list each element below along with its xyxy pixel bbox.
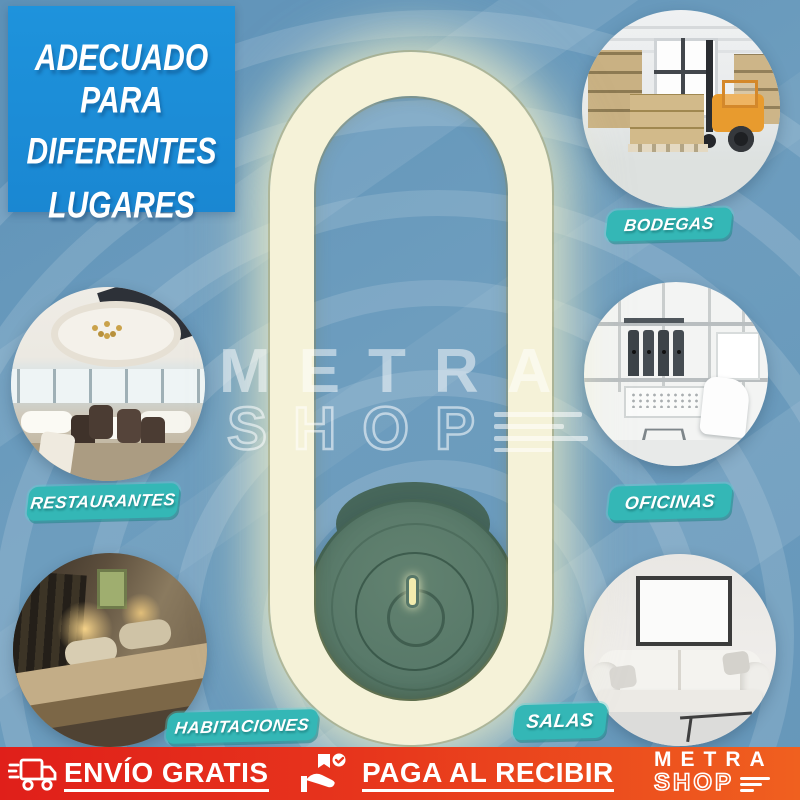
- brand-logo: METRA SHOP: [654, 749, 774, 795]
- chair-cover: [36, 431, 76, 477]
- oficinas-label: OFICINAS: [607, 483, 733, 520]
- brand-logo-metra: METRA: [654, 749, 774, 771]
- headline-line-1: ADECUADO PARA: [8, 38, 235, 123]
- headline-badge: ADECUADO PARA DIFERENTES LUGARES: [8, 6, 235, 212]
- headline-line-3: LUGARES: [8, 185, 235, 228]
- chandelier: [104, 321, 110, 327]
- restaurantes-photo: [11, 287, 205, 481]
- salas-photo: [584, 554, 776, 746]
- dining-chairs: [89, 405, 113, 439]
- restaurantes-label: RESTAURANTES: [26, 483, 180, 521]
- brand-speed-lines: [734, 774, 770, 792]
- office-chair: [699, 376, 751, 438]
- oficinas-photo: [584, 282, 768, 466]
- window-frame: [654, 70, 712, 74]
- device-ring: [270, 52, 552, 745]
- wall-frame: [636, 576, 732, 646]
- forklift-cab: [722, 80, 758, 108]
- brand-logo-shop: SHOP: [654, 771, 734, 795]
- cabinet-door: [716, 332, 760, 380]
- shelf-edge-dark: [624, 318, 684, 323]
- salas-label-text: SALAS: [525, 710, 595, 734]
- habitaciones-label: HABITACIONES: [165, 709, 319, 744]
- delivery-truck-icon: [8, 756, 58, 792]
- pay-on-delivery-text: PAGA AL RECIBIR: [362, 759, 614, 792]
- footer-bar: ENVÍO GRATIS PAGA AL RECIBIR METRA SHOP: [0, 747, 800, 800]
- headline-line-2: DIFERENTES: [8, 131, 235, 174]
- sofa-seat: [598, 690, 762, 712]
- restaurantes-label-text: RESTAURANTES: [29, 490, 176, 514]
- sofa-pillows: [609, 664, 638, 689]
- bodegas-label-text: BODEGAS: [623, 213, 715, 235]
- pallet: [628, 144, 708, 152]
- product-ad-image: METRA SHOP ADECUADO PARA DIFERENTES LUGA…: [0, 0, 800, 800]
- forklift-wheel: [728, 126, 754, 152]
- bodegas-photo: [582, 10, 780, 208]
- warehouse-floor: [582, 160, 780, 208]
- pallet-boxes: [630, 94, 704, 144]
- ceiling-recess: [51, 301, 181, 367]
- window-band: [11, 369, 205, 403]
- habitaciones-label-text: HABITACIONES: [174, 715, 311, 739]
- oficinas-label-text: OFICINAS: [624, 490, 717, 513]
- ceiling-trusses: [582, 26, 780, 29]
- lamp-glow: [121, 593, 161, 633]
- dining-tables: [21, 411, 73, 433]
- sofa-cushion-split: [678, 650, 681, 690]
- binder-dots: [632, 350, 636, 354]
- cash-on-delivery-icon: [298, 750, 354, 798]
- bodegas-label: BODEGAS: [605, 207, 733, 241]
- free-shipping-text: ENVÍO GRATIS: [64, 759, 269, 792]
- window-mullions: [17, 369, 20, 403]
- salas-label: SALAS: [512, 703, 608, 740]
- shelf-verticals: [618, 282, 621, 392]
- office-floor: [584, 440, 768, 466]
- panel-holes: [630, 392, 698, 408]
